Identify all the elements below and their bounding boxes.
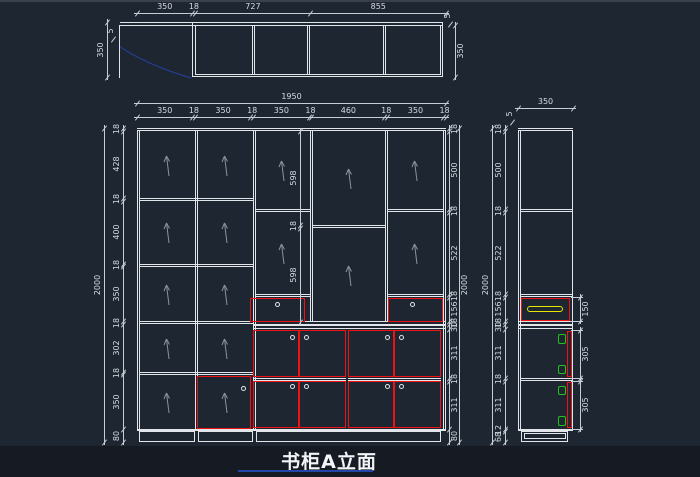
elev-shelf — [313, 225, 385, 228]
door-swing-arc — [115, 24, 200, 84]
dim-line — [134, 117, 449, 118]
dim-label: 18 — [451, 206, 459, 216]
dim-label: 18 — [495, 124, 503, 134]
dim-label: 18 — [290, 221, 298, 231]
door-handle-icon — [399, 384, 404, 389]
dim-label: 400 — [113, 225, 121, 240]
dim-label: 18 — [113, 124, 121, 134]
direction-arrow-icon — [161, 335, 174, 365]
side-front-edge — [572, 131, 573, 430]
plan-door-leaf — [119, 25, 120, 78]
dim-label: 1950 — [281, 93, 301, 101]
plan-carcass-inner — [195, 25, 441, 75]
dim-label: 80 — [451, 431, 459, 441]
dim-label: 18 — [113, 318, 121, 328]
plan-partition — [383, 25, 386, 75]
direction-arrow-icon — [219, 152, 232, 182]
dim-label: 428 — [113, 157, 121, 172]
door-handle-icon — [385, 384, 390, 389]
dim-label: 598 — [290, 267, 298, 282]
direction-arrow-icon — [343, 262, 356, 292]
direction-arrow-icon — [276, 157, 289, 187]
plan-partition — [252, 25, 255, 75]
dim-label: 311 — [451, 346, 459, 361]
door-handle-icon — [399, 335, 404, 340]
side-back-panel — [518, 131, 521, 430]
cad-drawing-canvas[interactable]: 书柜A立面 3501872785535018350183501846018350… — [0, 0, 700, 477]
dim-label: 500 — [495, 162, 503, 177]
elev-shelf — [140, 321, 253, 324]
direction-arrow-icon — [161, 281, 174, 311]
dim-label: 350 — [113, 286, 121, 301]
side-door-front-red — [567, 331, 572, 378]
direction-arrow-icon — [276, 240, 289, 270]
direction-arrow-icon — [219, 335, 232, 365]
dim-label: 311 — [495, 346, 503, 361]
dim-label: 500 — [451, 162, 459, 177]
dim-line — [492, 125, 493, 445]
dim-label: 18 — [495, 374, 503, 384]
dim-label: 18 — [113, 260, 121, 270]
green-handle-icon — [558, 334, 567, 344]
side-plinth-inner — [524, 433, 566, 439]
dim-line — [123, 125, 124, 445]
dim-label: 18 — [189, 3, 199, 11]
dim-label: 5 — [444, 13, 452, 18]
direction-arrow-icon — [161, 152, 174, 182]
dim-label: 302 — [113, 340, 121, 355]
dim-label: 80 — [113, 431, 121, 441]
door-handle-icon — [385, 335, 390, 340]
green-handle-icon — [558, 365, 567, 375]
elev-plinth — [139, 431, 195, 442]
dim-label: 18 — [189, 107, 199, 115]
elev-shelf — [256, 209, 311, 212]
side-shelf — [520, 209, 572, 212]
dim-label: 156 — [451, 302, 459, 317]
elev-left-panel — [137, 131, 140, 430]
dim-label: 727 — [245, 3, 260, 11]
dim-label: 18 — [451, 290, 459, 300]
side-flap-handle-slot — [527, 306, 563, 313]
dim-label: 350 — [457, 43, 465, 58]
canvas-top-edge — [0, 0, 700, 2]
elev-countertop — [253, 321, 447, 329]
elev-right-panel — [443, 131, 446, 430]
door-handle-icon — [304, 384, 309, 389]
dim-line — [505, 125, 506, 445]
dim-label: 598 — [290, 170, 298, 185]
dim-label: 305 — [582, 346, 590, 361]
title-underline — [238, 470, 373, 472]
direction-arrow-icon — [161, 389, 174, 419]
side-shelf — [520, 378, 572, 381]
dim-label: 350 — [215, 107, 230, 115]
dim-label: 30 — [451, 322, 459, 332]
green-handle-icon — [558, 416, 567, 426]
elev-plinth — [256, 431, 442, 442]
elev-shelf — [388, 209, 443, 212]
elev-top-panel — [137, 128, 446, 131]
plan-partition — [307, 25, 310, 75]
dim-label: 522 — [495, 245, 503, 260]
dim-label: 350 — [97, 42, 105, 57]
dim-tick — [510, 119, 515, 125]
dim-label: 5 — [107, 28, 115, 33]
dim-label: 522 — [451, 245, 459, 260]
door-handle-icon — [275, 302, 280, 307]
direction-arrow-icon — [219, 389, 232, 419]
direction-arrow-icon — [343, 165, 356, 195]
direction-arrow-icon — [219, 219, 232, 249]
elev-shelf — [140, 264, 253, 267]
dim-label: 2000 — [461, 275, 469, 295]
side-top-panel — [518, 128, 573, 131]
elev-flap-red — [388, 298, 443, 322]
elev-partition — [385, 131, 388, 322]
direction-arrow-icon — [409, 240, 422, 270]
dim-label: 18 — [247, 107, 257, 115]
dim-label: 311 — [451, 397, 459, 412]
dim-label: 350 — [274, 107, 289, 115]
side-door-front-red — [567, 382, 572, 429]
direction-arrow-icon — [409, 157, 422, 187]
dim-line — [134, 13, 449, 14]
dim-label: 350 — [157, 3, 172, 11]
dim-label: 5 — [506, 111, 514, 116]
dim-label: 311 — [495, 397, 503, 412]
door-handle-icon — [290, 384, 295, 389]
door-handle-icon — [304, 335, 309, 340]
dim-label: 18 — [439, 107, 449, 115]
direction-arrow-icon — [161, 219, 174, 249]
dim-label: 2000 — [482, 275, 490, 295]
dim-label: 18 — [113, 368, 121, 378]
door-handle-icon — [410, 302, 415, 307]
dim-label: 18 — [381, 107, 391, 115]
dim-line — [134, 103, 449, 104]
dim-label: 350 — [538, 98, 553, 106]
dim-label: 305 — [582, 397, 590, 412]
elev-plinth — [198, 431, 253, 442]
dim-label: 156 — [495, 302, 503, 317]
dim-label: 18 — [113, 194, 121, 204]
dim-label: 150 — [582, 301, 590, 316]
door-handle-icon — [290, 335, 295, 340]
dim-line — [515, 108, 576, 109]
dim-label: 2000 — [94, 275, 102, 295]
dim-label: 18 — [495, 290, 503, 300]
dim-line — [104, 125, 105, 445]
elev-shelf — [140, 372, 253, 375]
side-countertop — [518, 321, 573, 329]
door-handle-icon — [241, 386, 246, 391]
dim-label: 350 — [408, 107, 423, 115]
dim-label: 18 — [495, 206, 503, 216]
side-shelf — [520, 294, 572, 297]
dim-label: 350 — [157, 107, 172, 115]
dim-label: 30 — [495, 322, 503, 332]
dim-label: 855 — [371, 3, 386, 11]
green-handle-icon — [558, 386, 567, 396]
dim-label: 18 — [305, 107, 315, 115]
dim-label: 460 — [341, 107, 356, 115]
dim-label: 18 — [451, 374, 459, 384]
dim-label: 350 — [113, 394, 121, 409]
dim-label: 68 — [495, 432, 503, 442]
direction-arrow-icon — [219, 281, 232, 311]
elev-shelf — [140, 198, 253, 201]
